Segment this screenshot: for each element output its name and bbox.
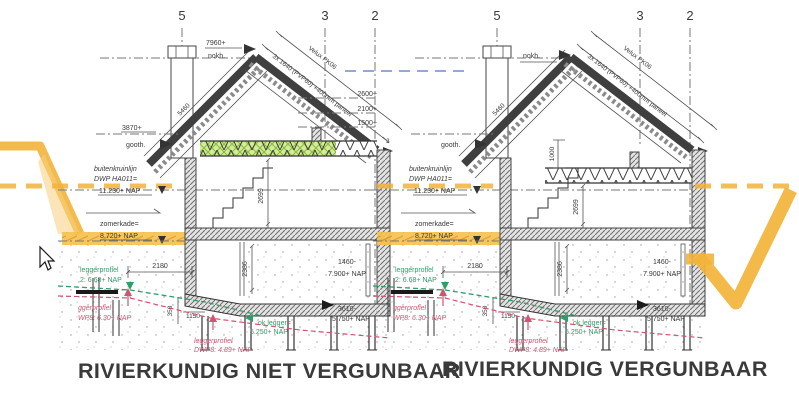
house-right: 5 3 2 3x 1640 (PVP60) +400mm paneel Velu… (373, 8, 717, 354)
legger-red2-label: leggerprofiel (509, 338, 548, 345)
section-drawing: 5 3 2 3x 1640 (PVP60) +400mm paneel Velu (0, 0, 799, 403)
buitenkruinlijn-line1: buitenkruinlijn (409, 166, 452, 173)
buitenkruinlijn-line1: buitenkruinlijn (94, 166, 137, 173)
pile-depth: 3610- (653, 306, 672, 313)
nok-flag-icon (244, 44, 256, 54)
goot-height-label: 3870+ gooth. (96, 125, 178, 149)
pile-depth: 3610- (338, 306, 357, 313)
zomerkade-value: 8.720+ NAP (100, 233, 138, 240)
floor-nap: 7.900+ NAP (643, 271, 681, 278)
lower-right-wall (692, 240, 705, 308)
zomerkade-name: zomerkade= (100, 221, 139, 228)
zomerkade-name: zomerkade= (415, 221, 454, 228)
attic-post (312, 128, 321, 141)
floor-depth: 1460- (653, 259, 672, 266)
legger-red-value: WP8: 6.30+ NAP (78, 315, 131, 322)
grid-label-3: 3 (321, 8, 328, 23)
floor-nap: 7.900+ NAP (328, 271, 366, 278)
pile-nap: 5.750+ NAP (332, 316, 370, 323)
upper-left-wall (185, 158, 196, 228)
dim-350: 350 (167, 305, 174, 316)
goot-value: 3870+ (122, 125, 142, 132)
sand-ground (56, 238, 186, 350)
lower-left-wall (500, 240, 511, 296)
upper-right-wall (692, 150, 705, 228)
ok-legger-value: 5.250+ NAP (250, 329, 288, 336)
upper-right-wall (377, 150, 390, 228)
legger-green-label: leggerprofiel (395, 267, 434, 274)
dim-2180: 2180 (467, 263, 483, 270)
buitenkruinlijn-value: 11.230+ NAP (414, 188, 456, 195)
lower-left-wall (185, 240, 196, 296)
legger-red2-value: DWP8: 4.89+ NAP (509, 347, 567, 354)
floor-slab (185, 228, 390, 240)
dim-350: 350 (482, 305, 489, 316)
buitenkruinlijn-line2: DWP HA011= (94, 176, 137, 183)
caption-right: RIVIERKUNDIG VERGUNBAAR (442, 357, 768, 381)
dim-2386: 2386 (242, 261, 249, 277)
goot-label: gooth. (441, 142, 461, 149)
house-left: 5 3 2 3x 1640 (PVP60) +400mm paneel Velu (0, 8, 402, 354)
attic-drop-dim: 1000 (549, 146, 556, 161)
legger-red2-value: DWP8: 4.89+ NAP (194, 347, 252, 354)
roof-panel-note: 3x 1640 (PVP60) +400mm paneel (586, 53, 669, 119)
legger-green-value: 2: 6.68+ NAP (80, 277, 122, 284)
level-2600: 2600+ (357, 91, 377, 98)
buitenkruinlijn-line2: DWP HA011= (409, 176, 452, 183)
upper-left-wall (500, 158, 511, 228)
drawing-canvas: 5 3 2 3x 1640 (PVP60) +400mm paneel Velu (0, 0, 799, 403)
zomerkade-value: 8.720+ NAP (415, 233, 453, 240)
caption-left: RIVIERKUNDIG NIET VERGUNBAAR (78, 359, 461, 383)
grid-label-3: 3 (636, 8, 643, 23)
buitenkruinlijn-label: buitenkruinlijn DWP HA011= 11.230+ NAP (58, 166, 390, 195)
floor-slab (500, 228, 705, 240)
nok-label: nokh. (523, 53, 540, 60)
buitenkruinlijn-value: 11.230+ NAP (99, 188, 141, 195)
mouse-cursor (40, 247, 54, 270)
legger-red-value: WP8: 6.30+ NAP (393, 315, 446, 322)
dike-vee (698, 190, 791, 303)
grid-label-2: 2 (686, 8, 693, 23)
legger-red-label: ggerprofiel (78, 305, 112, 312)
ok-legger-label: ok legger= (258, 320, 291, 327)
legger-green-value: 2: 6.68+ NAP (395, 277, 437, 284)
grid-label-5: 5 (178, 8, 185, 23)
ok-legger-label: ok legger= (573, 320, 606, 327)
dim-2699: 2699 (258, 188, 265, 204)
nok-value: 7960+ (206, 40, 226, 47)
existing-structure-bar (76, 290, 118, 294)
grid-label-5: 5 (493, 8, 500, 23)
legger-green-label: leggerprofiel (80, 267, 119, 274)
nok-height-label: 7960+ nokh. (205, 40, 256, 60)
nok-label: nokh. (208, 53, 225, 60)
roof-panel-note: 3x 1640 (PVP60) +400mm paneel (271, 53, 354, 119)
legger-red-label: ggerprofiel (393, 305, 427, 312)
dim-2386: 2386 (557, 261, 564, 277)
dike-fill (38, 154, 80, 234)
dim-2699: 2699 (573, 199, 580, 215)
mini-level-label: 3 (386, 138, 390, 145)
attic-post (630, 152, 639, 168)
upper-storey-dim: 2699 (573, 184, 585, 228)
dim-2180: 2180 (152, 263, 168, 270)
existing-structure-bar (391, 290, 433, 294)
ok-legger-value: 5.250+ NAP (565, 329, 603, 336)
level-2100: 2100+ (357, 106, 377, 113)
goot-label: gooth. (126, 142, 146, 149)
pile-nap: 5.750+ NAP (647, 316, 685, 323)
grid-label-2: 2 (371, 8, 378, 23)
legger-red2-label: leggerprofiel (194, 338, 233, 345)
floor-depth: 1460- (338, 259, 357, 266)
level-1500: 1500+ (357, 120, 377, 127)
